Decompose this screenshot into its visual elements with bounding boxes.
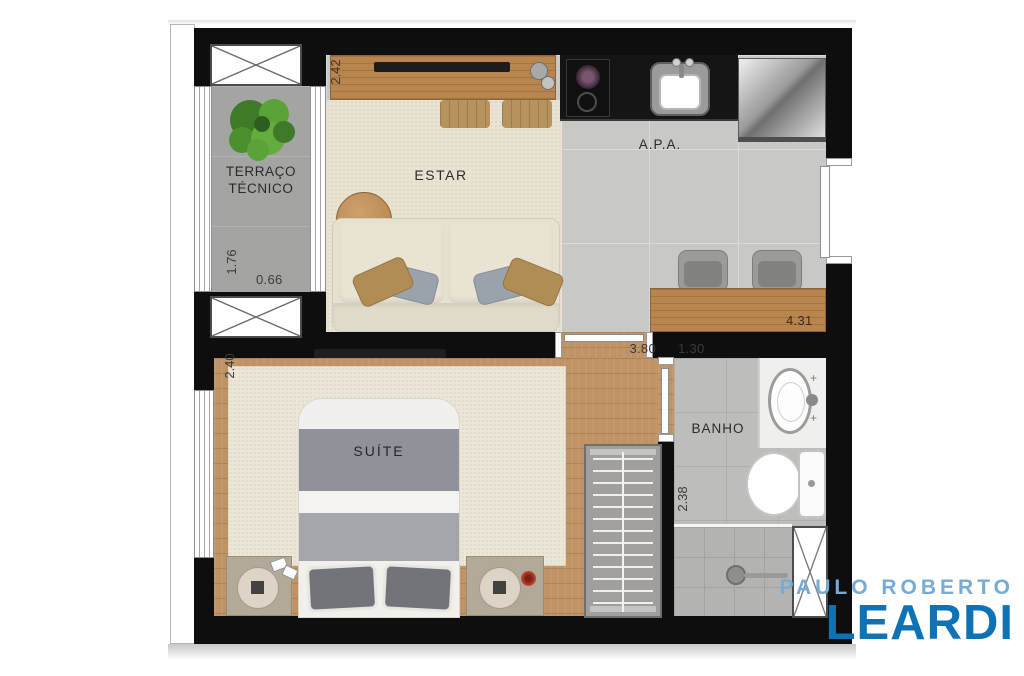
- apa-label: A.P.A.: [630, 137, 690, 154]
- shower-area: [674, 524, 792, 616]
- stool-icon: [752, 250, 802, 292]
- bed-sheet-band: [299, 491, 459, 513]
- tray-center: [493, 581, 506, 594]
- estar-terrace-window: [310, 86, 326, 292]
- bath-door-leaf: [661, 368, 669, 434]
- terrace-label-line1: TERRAÇO: [210, 164, 312, 181]
- terrace-label: TERRAÇO TÉCNICO: [210, 164, 312, 198]
- wall-left-stub: [194, 356, 214, 390]
- washbasin-inner: [777, 382, 805, 422]
- estar-label: ESTAR: [403, 167, 479, 185]
- wardrobe-icon: [584, 444, 662, 618]
- shaft-hatch-top: [210, 44, 302, 86]
- terrace-label-line2: TÉCNICO: [210, 181, 312, 198]
- toilet-icon: [746, 450, 828, 520]
- pouf: [502, 100, 552, 128]
- faucet-handle: +: [810, 414, 819, 423]
- sofa: [332, 218, 560, 332]
- banho-label: BANHO: [686, 421, 750, 438]
- tray-center: [251, 581, 264, 594]
- apa-width-dim: 4.31: [786, 313, 813, 328]
- fridge-icon: [738, 58, 826, 142]
- facade-strip: [170, 24, 195, 644]
- bath-door-jamb-bottom: [658, 434, 674, 442]
- bed-blanket-2: [299, 513, 459, 561]
- wall-right-upper: [826, 28, 852, 164]
- plan-bottom-shadow: [168, 644, 856, 660]
- bed-pillow: [382, 563, 454, 613]
- toilet-button: [808, 480, 815, 487]
- sofa-backrest: [333, 303, 559, 331]
- sink-faucet-2: [685, 58, 694, 67]
- flower-icon: [521, 571, 536, 586]
- terrace-width-dim: 0.66: [256, 272, 283, 287]
- tv-icon: [374, 62, 510, 72]
- toilet-bowl: [746, 452, 802, 516]
- nightstand: [466, 556, 544, 616]
- bath-door-jamb-top: [658, 357, 674, 365]
- cooktop-burner-back: [577, 92, 597, 112]
- wardrobe-rod: [622, 452, 624, 612]
- cooktop-burner-front: [576, 65, 600, 89]
- suite-left-window: [194, 390, 214, 558]
- suite-label: SUÍTE: [299, 443, 459, 461]
- terrace-depth-dim: 1.76: [224, 240, 242, 284]
- double-bed: SUÍTE: [298, 398, 460, 618]
- suite-tv-icon: [314, 349, 446, 358]
- brand-line2: LEARDI: [780, 600, 1014, 647]
- faucet-handle: +: [810, 374, 819, 383]
- banho-depth-dim: 2.38: [675, 477, 693, 521]
- suite-hall-width-dim: 3.80: [614, 341, 656, 356]
- stool-icon: [678, 250, 728, 292]
- sink-spout: [679, 64, 684, 78]
- floor-plan-page: TERRAÇO TÉCNICO 1.76 0.66 2.42 ESTAR A.P…: [0, 0, 1024, 676]
- wall-left-bottom: [194, 558, 214, 618]
- faucet-icon: [806, 394, 818, 406]
- bed-pillow: [306, 563, 378, 613]
- shaft-hatch-left: [210, 296, 302, 338]
- hall-door-jamb-left: [555, 332, 562, 358]
- pouf: [440, 100, 490, 128]
- kitchen-sink-icon: [650, 62, 710, 116]
- entrance-door-leaf: [820, 166, 830, 258]
- nightstand: [226, 556, 292, 616]
- plan-top-shadow: [168, 20, 856, 25]
- banho-width-dim: 1.30: [678, 341, 705, 356]
- wall-bottom: [194, 616, 852, 644]
- cooktop-icon: [566, 59, 610, 117]
- plant-icon: [220, 90, 304, 168]
- shower-drain-icon: [726, 565, 746, 585]
- estar-depth-dim: 2.42: [328, 50, 346, 94]
- speaker-icon-2: [541, 76, 555, 90]
- brand-logo: PAULO ROBERTO LEARDI: [780, 576, 1014, 647]
- sink-basin: [659, 74, 701, 110]
- vanity-counter: + +: [758, 358, 826, 448]
- entrance-door-jamb-top: [826, 158, 852, 166]
- suite-depth-dim: 2.40: [222, 344, 240, 388]
